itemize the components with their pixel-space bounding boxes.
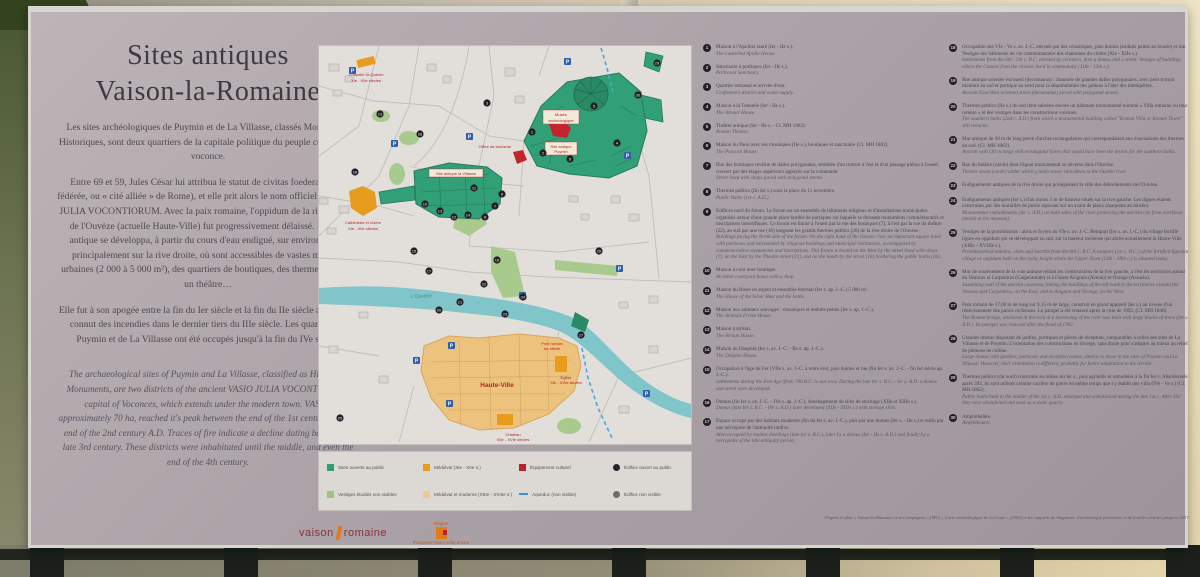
numbered-site-item: 6Maison du Paon avec ses mosaïques (IIe … [703,142,945,155]
map-site-dot-number: 22 [482,282,487,287]
numbered-site-item: 20Thermes publics (IIe s.) du sud dont s… [949,103,1189,129]
site-description-fr: Maison à l'Apollon lauré (Ier - IIe s.). [716,44,793,51]
site-description: Mur de soutènement de la voie antique re… [962,269,1189,295]
site-description: Maison à l'Apollon lauré (Ier - IIe s.).… [716,44,793,57]
svg-text:Office de tourisme: Office de tourisme [479,144,512,149]
site-number-badge: 7 [703,162,711,170]
site-description-fr: Édifices nord du forum. Le forum est un … [716,208,945,234]
fence-post [806,545,840,577]
site-description-en: The Animals Frieze House. [716,313,874,320]
site-description-en: Area occupied by modest dwellings (late … [716,432,945,445]
numbered-site-item: 17Espace occupé par des habitats modeste… [703,418,945,444]
site-number-badge: 30 [949,414,957,422]
site-description: Théâtre antique (Ier - IIe s. - Cl. MH 1… [716,123,806,136]
site-number-badge: 24 [949,197,957,205]
site-description-en: Large domus with gardens, porticoes and … [962,354,1189,367]
site-number-badge: 17 [703,418,711,426]
site-number-badge: 20 [949,103,957,111]
site-number-badge: 3 [703,83,711,91]
map-site-dot-number: 29 [655,61,660,66]
site-description-fr: Mur antique de 30 m de long percé d'arch… [962,136,1189,149]
legend-label: Médiéval (XIe - XIIe s.) [434,465,481,470]
legend-item: Équipement culturel [519,464,613,471]
svg-text:Haute-Ville: Haute-Ville [480,382,514,389]
numbered-site-item: 7Rue des boutiques revêtue de dalles pol… [703,162,945,182]
logo-vaison-text-right: romaine [344,527,387,539]
site-number-badge: 2 [703,64,711,72]
site-description-fr: Occupation à l'âge du Fer (VIIe s. av. J… [716,366,945,379]
site-description-en: Craftsmen's district and water supply. [716,90,794,97]
fence-post [30,545,64,577]
site-description-fr: Occupation des VIe - Ve s. av. J.-C. att… [962,44,1189,57]
region-logo-mark-icon [436,527,447,539]
svg-text:Puymin: Puymin [554,149,567,154]
site-description-en: Ancient wall (30 m long) with rectangula… [962,149,1189,156]
site-description-en: Domus (late Ier s. B.C. - IVe s. A.D.) l… [716,405,917,412]
site-description: Maison du Paon avec ses mosaïques (IIe s… [716,142,889,155]
site-description-en: Monumental embankments (Ier s. A.D.) on … [962,210,1189,223]
site-description: Maison à la Tonnelle (Ier - IIe s.).The … [716,103,785,116]
map-site-dot-number: 10 [423,202,428,207]
legend-swatch-icon [519,464,526,471]
title-line-1: Sites antiques [57,38,359,74]
site-description: Maison aux animaux sauvages : mosaïques … [716,307,874,320]
fence-post [1166,545,1200,577]
map-site-dot-number: 17 [427,269,432,274]
vaison-logo-mark-icon [335,526,342,540]
site-description: Quartier artisanal et arrivée d'eau.Craf… [716,83,794,96]
numbered-site-item: 18Occupation des VIe - Ve s. av. J.-C. a… [949,44,1189,70]
site-description-fr: Théâtre antique (Ier - IIe s. - Cl. MH 1… [716,123,806,130]
site-number-badge: 6 [703,142,711,150]
site-description: Amphithéâtre.Amphitheatre. [962,414,992,427]
site-number-badge: 9 [703,208,711,216]
numbered-site-item: 8Thermes publics (fin Ier s.) sous la pl… [703,188,945,201]
legend-label: Édifice ouvert au public [624,465,672,470]
site-description-en: Street lined with shops paved with polyg… [716,175,945,182]
legend-label: Médiéval et moderne (XIIIe - XVIIIe s.) [434,492,512,497]
castle-shape [497,414,513,425]
numbered-site-item: 1Maison à l'Apollon lauré (Ier - IIe s.)… [703,44,945,57]
site-description: Endiguements antiques de la rive droite … [962,182,1159,190]
site-description: Édifices nord du forum. Le forum est un … [716,208,945,261]
site-description-en: An inner courtyard house with a shop. [716,274,795,281]
legend-item: Aqueduc (non visible) [519,492,613,497]
fence-post [612,545,646,577]
site-description-fr: Maison à cour avec boutique. [716,267,795,274]
site-description-en: The House of the Silver Bust and the bat… [716,294,868,301]
site-description-fr: Maison au Dauphin (Ier s. av. J.-C. - II… [716,346,824,353]
numbered-site-item: 29Thermes publics (du nord) construits a… [949,374,1189,407]
site-number-badge: 11 [703,287,711,295]
site-description-en: The southern baths (2nd c. A.D.) from wh… [962,116,1189,129]
legend-item: Édifice non visible [613,491,699,498]
legend-item: Sites ouverts au public [327,464,423,471]
site-number-badge: 29 [949,374,957,382]
site-description-fr: Endiguements antiques (Ier s.) d'au moin… [962,197,1189,210]
site-description-fr: Maison du Paon avec ses mosaïques (IIe s… [716,142,889,149]
site-description: Espace occupé par des habitats modestes … [716,418,945,444]
map-site-dot-number: 30 [636,93,641,98]
site-description-fr: Maison à atrium. [716,326,755,333]
intro-paragraph-fr-3: Elle fut à son apogée entre la fin du Ie… [57,304,359,348]
legend-swatch-icon [423,464,430,471]
svg-text:Cathédrale et cloître: Cathédrale et cloître [345,220,382,225]
legend-label: Sites ouverts au public [338,465,384,470]
site-number-badge: 28 [949,335,957,343]
church-shape [555,356,567,372]
map-site-dot-number: 20 [437,308,442,313]
site-description: Rue des boutiques revêtue de dalles poly… [716,162,945,182]
site-description-en: Ancient East-West oriented street (decum… [962,90,1189,97]
map-site-dot-number: 27 [579,333,584,338]
site-number-badge: 4 [703,103,711,111]
numbered-site-item: 9Édifices nord du forum. Le forum est un… [703,208,945,261]
legend-item: Édifice ouvert au public [613,464,699,471]
numbered-site-item: 26Mur de soutènement de la voie antique … [949,269,1189,295]
site-description-fr: Rue antique orientée est/ouest (decumanu… [962,77,1189,90]
legend-swatch-icon [423,491,430,498]
site-number-badge: 13 [703,326,711,334]
site-description-fr: Thermes publics (IIe s.) du sud dont sub… [962,103,1189,116]
site-description-en: The Peacock House. [716,149,889,156]
panel-title: Sites antiques Vaison-la-Romaine [57,38,359,110]
intro-paragraph-fr-1: Les sites archéologiques de Puymin et de… [57,121,359,165]
numbered-site-item: 15Occupation à l'âge du Fer (VIIe s. av.… [703,366,945,392]
site-description-fr: Grandes domus disposant de jardins, port… [962,335,1189,355]
legend-swatch-icon [613,464,620,471]
site-description-en: Settlements during the Iron Age (from 70… [716,379,945,392]
town-map-svg: Chapelle St-Quenin XIe - XIIe siècles Ca… [319,46,691,444]
map-site-dot-number: 14 [466,213,471,218]
map-site-dot-number: 26 [597,249,602,254]
site-descriptions-column-1: 1Maison à l'Apollon lauré (Ier - IIe s.)… [703,44,945,445]
intro-paragraph-fr-2: Entre 69 et 59, Jules César lui attribua… [57,176,359,293]
site-number-badge: 12 [703,307,711,315]
svg-text:Ier siècle: Ier siècle [544,346,561,351]
site-number-badge: 16 [703,399,711,407]
site-description: Vestiges de la protohistoire : abris et … [962,229,1189,262]
site-number-badge: 18 [949,44,957,52]
title-line-2: Vaison-la-Romaine [57,74,359,110]
site-description-en: Theatre street (cardo) under which a mai… [962,169,1126,176]
map-site-dot-number: 25 [338,416,343,421]
site-description-fr: Maison aux animaux sauvages : mosaïques … [716,307,874,314]
numbered-site-item: 19Rue antique orientée est/ouest (decuma… [949,77,1189,97]
svg-text:XIIe - XVIe siècles: XIIe - XVIe siècles [497,437,530,442]
site-description: Maison du Buste en argent et ensemble th… [716,287,868,300]
site-description-fr: Thermes publics (fin Ier s.) sous la pla… [716,188,835,195]
site-description-en: Amphitheatre. [962,420,992,427]
legend-item: Vestiges étudiés non visibles [327,491,423,498]
numbered-site-item: 16Domus (fin Ier s. av. J.-C. - IVe s. a… [703,399,945,412]
legend-swatch-icon [327,491,334,498]
site-description-en: Protohistorical remains, slabs and heart… [962,249,1189,262]
site-description-fr: Maison à la Tonnelle (Ier - IIe s.). [716,103,785,110]
numbered-site-item: 10Maison à cour avec boutique.An inner c… [703,267,945,280]
region-logo-top-text: Région [434,521,448,526]
map-site-dot-number: 24 [521,295,526,300]
site-description: Thermes publics (IIe s.) du sud dont sub… [962,103,1189,129]
legend-item: Médiéval (XIe - XIIe s.) [423,464,519,471]
legend-swatch-icon [327,464,334,471]
site-description-en: The Dolphin House. [716,353,824,360]
site-description: Domus (fin Ier s. av. J.-C. - IVe s. ap.… [716,399,917,412]
site-description-en: Roman Theatre. [716,129,806,136]
numbered-site-item: 11Maison du Buste en argent et ensemble … [703,287,945,300]
river-label: L'Ouvèze [411,293,432,300]
svg-text:XIe - XIIe siècles: XIe - XIIe siècles [351,78,381,83]
numbered-site-item: 2Sanctuaire à portiques (Ier - IIe s.).P… [703,64,945,77]
numbered-site-item: 22Rue du théâtre (cardo) dont l'égout mo… [949,162,1189,175]
legend-label: Équipement culturel [530,465,571,470]
numbered-site-item: 27Pont romain de 17,00 m de long sur 9,1… [949,302,1189,328]
source-footnote: D'après le plan « Vaison-la-Romaine et s… [703,515,1190,520]
site-description-fr: Vestiges de la protohistoire : abris et … [962,229,1189,249]
site-description: Maison au Dauphin (Ier s. av. J.-C. - II… [716,346,824,359]
site-description-en: Porticoed Sanctuary. [716,70,788,77]
numbered-site-item: 12Maison aux animaux sauvages : mosaïque… [703,307,945,320]
region-paca-logo: Région Provence-Alpes Côte d'Azur [413,521,469,545]
logo-row: vaison romaine Région Provence-Alpes Côt… [299,516,489,550]
intro-column: Sites antiques Vaison-la-Romaine Les sit… [57,38,359,480]
map-site-dot-number: 21 [458,300,463,305]
site-number-badge: 15 [703,366,711,374]
vaison-la-romaine-logo: vaison romaine [299,526,387,540]
site-description-fr: Rue des boutiques revêtue de dalles poly… [716,162,945,175]
site-description-en: Sustaining wall of the ancient causeway … [962,282,1189,295]
site-description-en: The Roman bridge, anchored in the rock a… [962,315,1189,328]
site-description-fr: Endiguements antiques de la rive droite … [962,182,1159,189]
site-number-badge: 23 [949,182,957,190]
site-description-en: Settlements from the 6th - 5th c. B.C. a… [962,57,1189,70]
site-number-badge: 19 [949,77,957,85]
numbered-site-item: 24Endiguements antiques (Ier s.) d'au mo… [949,197,1189,223]
site-description-en: Public Baths (1st c. A.D.). [716,195,835,202]
numbered-site-item: 13Maison à atrium.The Atrium House. [703,326,945,339]
site-number-badge: 10 [703,267,711,275]
svg-text:XIe - XIIe siècles: XIe - XIIe siècles [348,226,378,231]
site-number-badge: 8 [703,188,711,196]
map-site-dot-number: 12 [452,215,457,220]
site-description: Rue antique orientée est/ouest (decumanu… [962,77,1189,97]
legend-item: Médiéval et moderne (XIIIe - XVIIIe s.) [423,491,519,498]
site-number-badge: 26 [949,269,957,277]
legend-label: Aqueduc (non visible) [532,492,576,497]
region-logo-bottom-text: Provence-Alpes Côte d'Azur [413,540,469,545]
site-description-fr: Mur de soutènement de la voie antique re… [962,269,1189,282]
site-number-badge: 21 [949,136,957,144]
legend-swatch-icon [519,493,528,497]
site-description-en: The Atrium House. [716,333,755,340]
map-site-dot-number: 15 [412,249,417,254]
site-number-badge: 14 [703,346,711,354]
site-description: Maison à cour avec boutique.An inner cou… [716,267,795,280]
map-site-dot-number: 18 [353,170,358,175]
town-map: Chapelle St-Quenin XIe - XIIe siècles Ca… [319,46,691,444]
numbered-site-item: 4Maison à la Tonnelle (Ier - IIe s.).The… [703,103,945,116]
site-description: Occupation des VIe - Ve s. av. J.-C. att… [962,44,1189,70]
numbered-site-item: 5Théâtre antique (Ier - IIe s. - Cl. MH … [703,123,945,136]
site-description: Grandes domus disposant de jardins, port… [962,335,1189,368]
numbered-site-item: 3Quartier artisanal et arrivée d'eau.Cra… [703,83,945,96]
legend-label: Vestiges étudiés non visibles [338,492,397,497]
site-description-fr: Maison du Buste en argent et ensemble th… [716,287,868,294]
site-description-en: Public baths built in the middle of the … [962,394,1189,407]
legend-label: Édifice non visible [624,492,661,497]
site-description-fr: Amphithéâtre. [962,414,992,421]
svg-text:archéologique: archéologique [548,118,574,123]
legend-swatch-icon [613,491,620,498]
map-site-dot-number: 23 [503,312,508,317]
site-number-badge: 1 [703,44,711,52]
site-descriptions-column-2: 18Occupation des VIe - Ve s. av. J.-C. a… [949,44,1189,427]
fence-post [1000,545,1034,577]
numbered-site-item: 30Amphithéâtre.Amphitheatre. [949,414,1189,427]
numbered-site-item: 25Vestiges de la protohistoire : abris e… [949,229,1189,262]
map-site-dot-number: 28 [418,132,423,137]
site-description: Sanctuaire à portiques (Ier - IIe s.).Po… [716,64,788,77]
site-number-badge: 25 [949,229,957,237]
site-description-fr: Quartier artisanal et arrivée d'eau. [716,83,794,90]
site-description: Thermes publics (du nord) construits au … [962,374,1189,407]
site-description-fr: Pont romain de 17,00 m de long sur 9,15 … [962,302,1189,315]
site-description-en: The Arbour House. [716,110,785,117]
svg-text:XIe - XVIe siècles: XIe - XVIe siècles [550,380,582,385]
site-number-badge: 27 [949,302,957,310]
numbered-site-item: 28Grandes domus disposant de jardins, po… [949,335,1189,368]
site-description-en: Buildings facing the North side of the f… [716,234,945,260]
logo-vaison-text-left: vaison [299,527,334,539]
site-description: Mur antique de 30 m de long percé d'arch… [962,136,1189,156]
site-description: Occupation à l'âge du Fer (VIIe s. av. J… [716,366,945,392]
numbered-site-item: 14Maison au Dauphin (Ier s. av. J.-C. - … [703,346,945,359]
svg-text:Musée: Musée [555,112,568,117]
site-description-fr: Sanctuaire à portiques (Ier - IIe s.). [716,64,788,71]
map-site-dot-number: 13 [438,209,443,214]
map-legend: Sites ouverts au publicVestiges étudiés … [319,452,691,510]
information-panel: Sites antiques Vaison-la-Romaine Les sit… [28,6,1188,548]
svg-text:Site antique la Villasse: Site antique la Villasse [436,171,477,176]
site-description-fr: Espace occupé par des habitats modestes … [716,418,945,431]
site-number-badge: 5 [703,123,711,131]
site-description: Rue du théâtre (cardo) dont l'égout monu… [962,162,1126,175]
numbered-site-item: 23Endiguements antiques de la rive droit… [949,182,1189,190]
site-description-fr: Rue du théâtre (cardo) dont l'égout monu… [962,162,1126,169]
site-description: Endiguements antiques (Ier s.) d'au moin… [962,197,1189,223]
site-description: Maison à atrium.The Atrium House. [716,326,755,339]
site-number-badge: 22 [949,162,957,170]
map-site-dot-number: 16 [495,258,500,263]
fence-post [224,545,258,577]
intro-paragraph-en: The archaeological sites of Puymin and L… [57,367,359,469]
site-description: Pont romain de 17,00 m de long sur 9,15 … [962,302,1189,328]
site-description-fr: Thermes publics (du nord) construits au … [962,374,1189,394]
map-site-dot-number: 19 [378,112,383,117]
numbered-site-item: 21Mur antique de 30 m de long percé d'ar… [949,136,1189,156]
site-description-en: The Laurelled Apollo House. [716,51,793,58]
site-description: Thermes publics (fin Ier s.) sous la pla… [716,188,835,201]
